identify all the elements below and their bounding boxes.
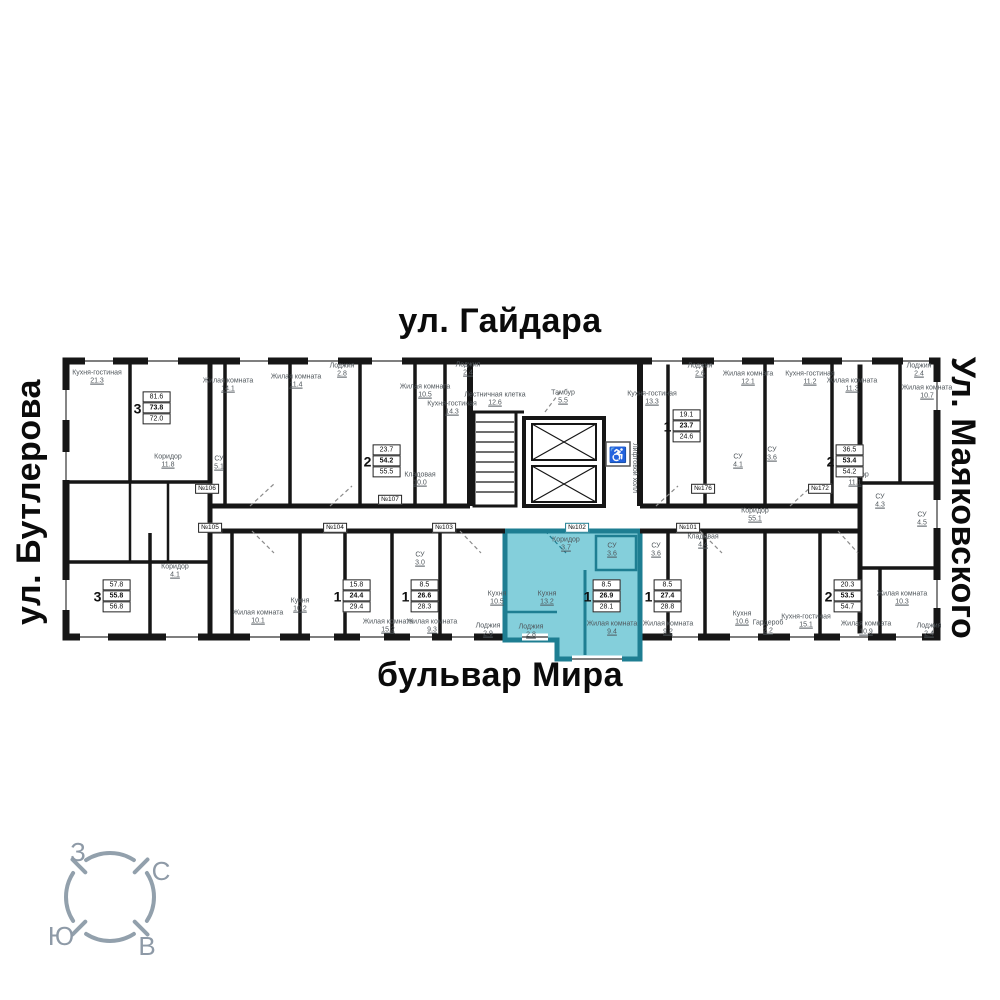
compass-south-label: Ю [48, 923, 74, 949]
compass-east-label: В [138, 933, 155, 959]
floor-plan: ♿ [0, 0, 1000, 1000]
street-label-butlerova: ул. Бутлерова [10, 379, 49, 625]
compass-west-label: З [70, 839, 86, 865]
svg-text:♿: ♿ [609, 446, 628, 464]
building-outline [66, 361, 937, 637]
street-label-gaydara: ул. Гайдара [398, 302, 601, 341]
street-label-mayakovskogo: Ул. Маяковского [943, 357, 982, 640]
compass-north-label: С [152, 858, 171, 884]
street-label-mira: бульвар Мира [377, 656, 623, 695]
